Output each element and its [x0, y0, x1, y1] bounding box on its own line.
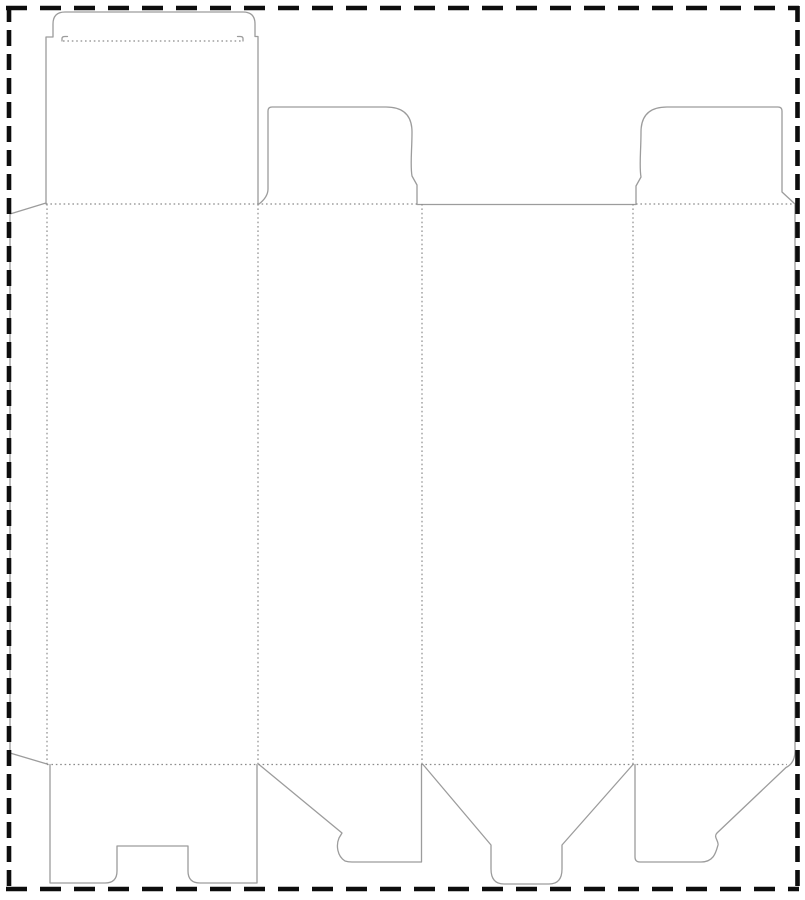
- tuck-shoulder-hook-right: [238, 37, 244, 42]
- bottom-flap-left-side-panel-outline: [259, 765, 422, 863]
- glue-flap-outline: [10, 203, 47, 764]
- dust-flap-left-outline: [259, 107, 417, 204]
- dust-flap-right-side-panel-edge-and-bottom-flap-outline: [635, 107, 795, 862]
- dieline-svg: [0, 0, 805, 900]
- dieline-sheet: [0, 0, 805, 900]
- bottom-tongue-flap-back-panel-outline: [423, 765, 633, 885]
- bottom-lock-flap-front-panel-outline: [50, 765, 257, 884]
- tuck-shoulder-hook-left: [62, 37, 68, 42]
